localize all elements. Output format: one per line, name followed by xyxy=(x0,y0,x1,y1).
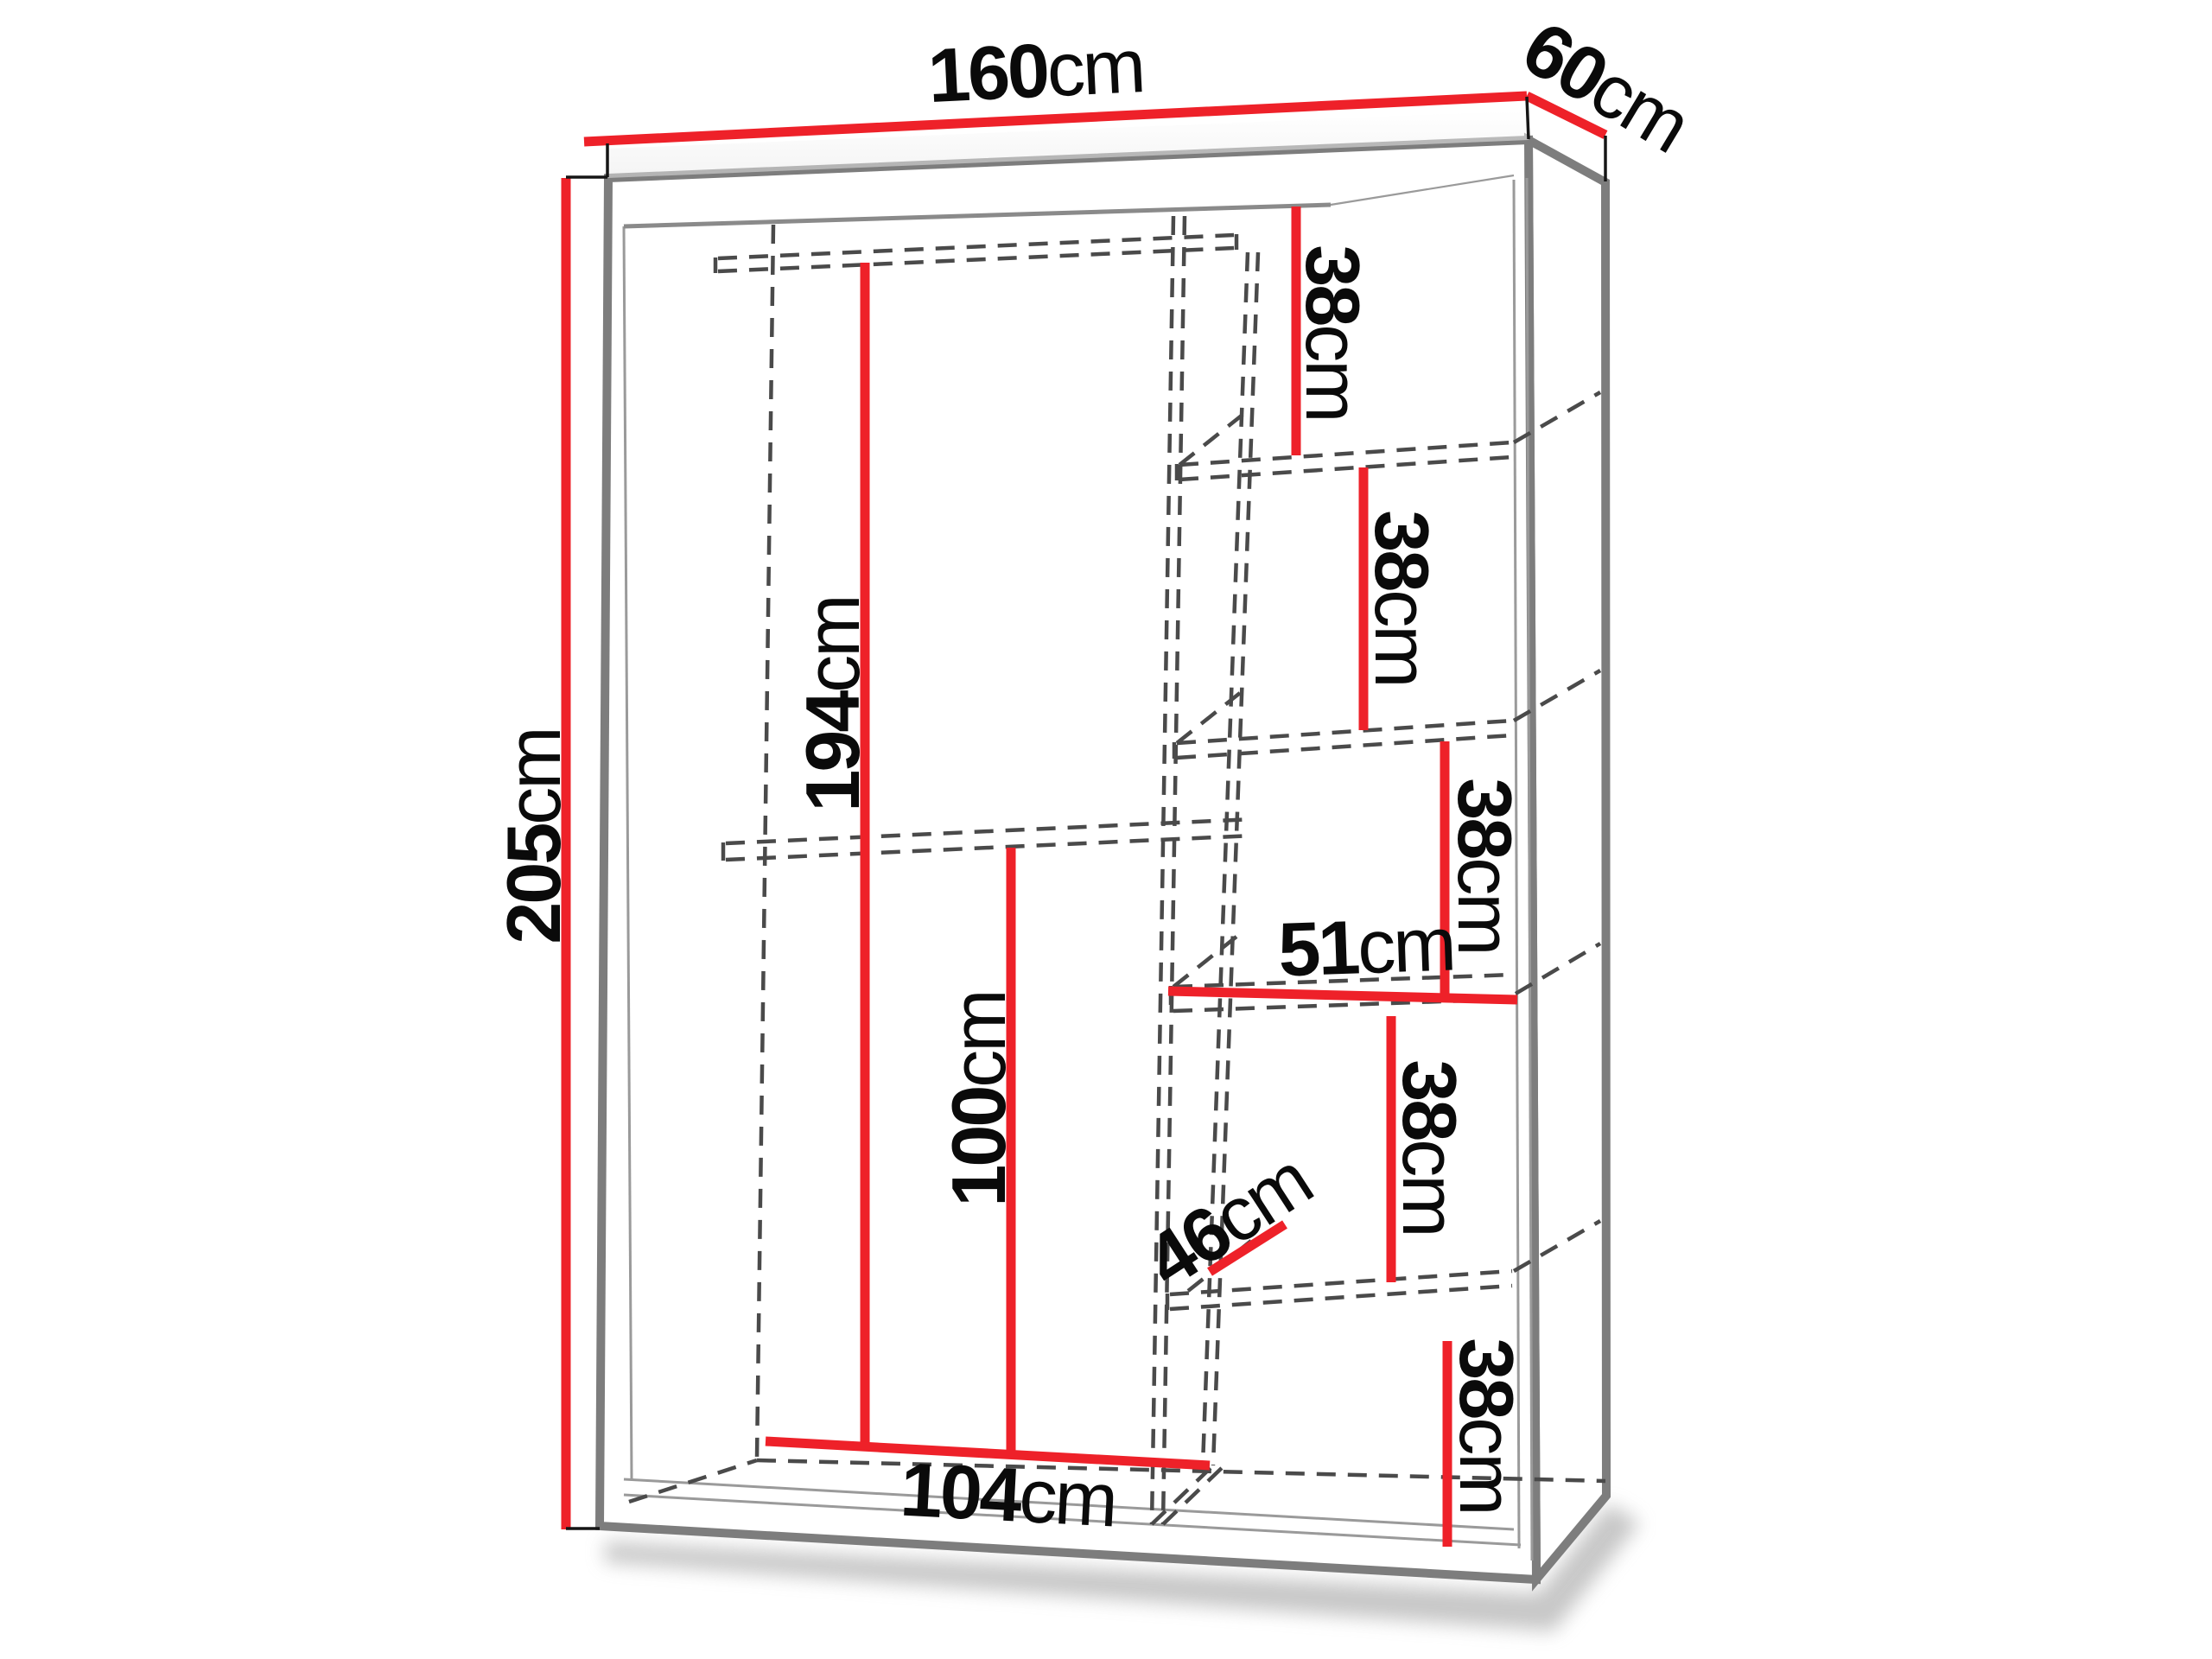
label-height-205cm: 205cm xyxy=(491,728,576,944)
wardrobe-dimension-diagram: 160cm 60cm 205cm 194cm 100cm 104cm 51cm … xyxy=(0,0,2212,1659)
label-gap3-38cm: 38cm xyxy=(1442,778,1528,953)
label-lower-section-100cm: 100cm xyxy=(936,991,1021,1206)
label-shelf-width-51cm: 51cm xyxy=(1277,901,1456,993)
tick-width-right xyxy=(1527,97,1529,139)
label-compartment-width-104cm: 104cm xyxy=(899,1446,1118,1543)
label-gap5-38cm: 38cm xyxy=(1444,1338,1529,1513)
label-gap4-38cm: 38cm xyxy=(1387,1059,1472,1235)
label-width-160cm: 160cm xyxy=(926,22,1146,118)
label-interior-height-194cm: 194cm xyxy=(790,596,875,811)
label-gap1-38cm: 38cm xyxy=(1290,245,1376,420)
label-gap2-38cm: 38cm xyxy=(1359,510,1445,685)
right-side-panel xyxy=(1529,140,1606,1580)
diagram-canvas: 160cm 60cm 205cm 194cm 100cm 104cm 51cm … xyxy=(0,0,2212,1659)
